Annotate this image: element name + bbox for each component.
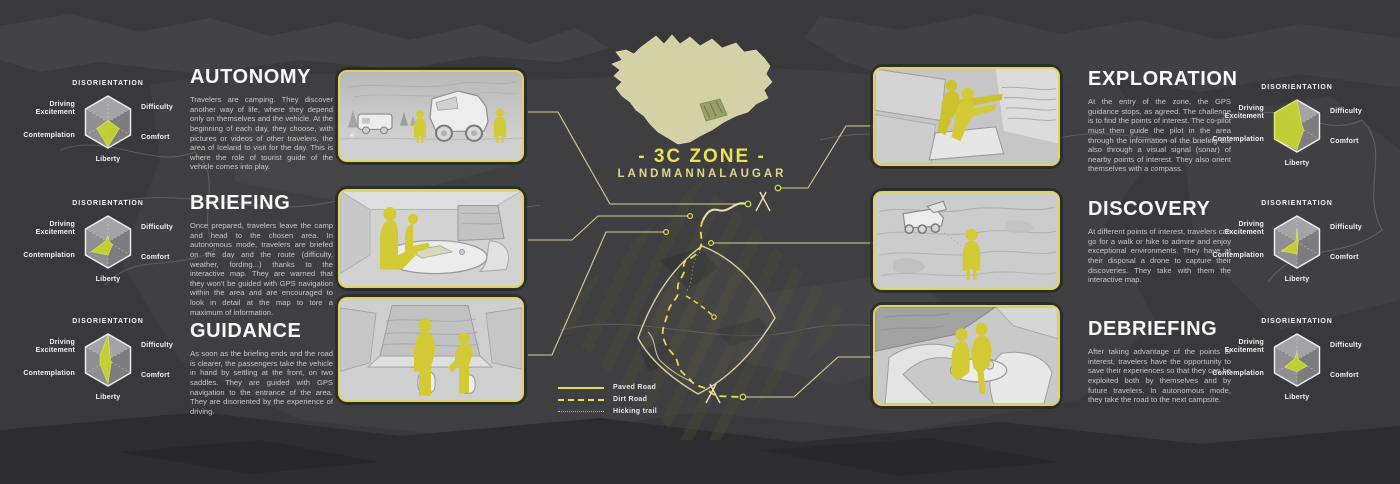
illustration-card-autonomy [335, 67, 527, 165]
radar-axis-contemplation: Contemplation [23, 370, 75, 378]
infographic-canvas: - 3C ZONE - LANDMANNALAUGAR Paved Road D… [0, 0, 1400, 484]
radar-axis-liberty: Liberty [23, 394, 193, 402]
section-text-discovery: At different points of interest, travele… [1088, 227, 1231, 285]
radar-axis-difficulty: Difficulty [141, 342, 193, 350]
dirt-road-sample [558, 399, 604, 401]
radar-exploration: DISORIENTATION Driving Excitement Diffic… [1212, 84, 1382, 170]
radar-axis-driving-excitement: Driving Excitement [23, 339, 75, 355]
radar-chart [1267, 94, 1327, 158]
legend-label: Hicking trail [613, 408, 657, 415]
radar-axis-liberty: Liberty [1212, 276, 1382, 284]
radar-chart [1267, 328, 1327, 392]
radar-axis-contemplation: Contemplation [23, 252, 75, 260]
radar-chart [78, 90, 138, 154]
briefing-illustration [340, 191, 522, 286]
radar-axis-comfort: Comfort [141, 134, 193, 142]
illustration-card-exploration [870, 64, 1063, 169]
debriefing-illustration [875, 307, 1058, 404]
map-legend: Paved Road Dirt Road Hicking trail [558, 384, 657, 420]
radar-axis-difficulty: Difficulty [141, 104, 193, 112]
radar-autonomy: DISORIENTATION Driving Excitement Diffic… [23, 80, 193, 166]
radar-axis-difficulty: Difficulty [1330, 108, 1382, 116]
illustration-card-debriefing [870, 302, 1063, 409]
radar-axis-liberty: Liberty [1212, 394, 1382, 402]
radar-axis-comfort: Comfort [141, 254, 193, 262]
radar-discovery: DISORIENTATION Driving Excitement Diffic… [1212, 200, 1382, 286]
section-title-guidance: GUIDANCE [190, 320, 333, 343]
illustration-card-briefing [335, 186, 527, 291]
section-title-discovery: DISCOVERY [1088, 198, 1231, 221]
discovery-illustration [875, 193, 1058, 288]
radar-debriefing: DISORIENTATION Driving Excitement Diffic… [1212, 318, 1382, 404]
radar-axis-disorientation: DISORIENTATION [23, 80, 193, 88]
radar-axis-liberty: Liberty [1212, 160, 1382, 168]
radar-axis-difficulty: Difficulty [141, 224, 193, 232]
radar-axis-disorientation: DISORIENTATION [1212, 200, 1382, 208]
iceland-map [612, 35, 772, 144]
radar-axis-liberty: Liberty [23, 156, 193, 164]
illustration-card-guidance [335, 294, 527, 405]
section-text-debriefing: After taking advantage of the points of … [1088, 347, 1231, 405]
radar-chart [78, 210, 138, 274]
radar-axis-comfort: Comfort [1330, 254, 1382, 262]
section-title-debriefing: DEBRIEFING [1088, 318, 1231, 341]
radar-guidance: DISORIENTATION Driving Excitement Diffic… [23, 318, 193, 404]
guidance-illustration [340, 299, 522, 400]
campsite-illustration [340, 72, 522, 160]
zone-subtitle: LANDMANNALAUGAR [596, 168, 808, 180]
radar-axis-comfort: Comfort [1330, 372, 1382, 380]
radar-axis-contemplation: Contemplation [23, 132, 75, 140]
paved-road-sample [558, 387, 604, 389]
zone-title: - 3C ZONE - [608, 146, 796, 168]
hiking-trail-sample [558, 411, 604, 412]
radar-axis-disorientation: DISORIENTATION [1212, 318, 1382, 326]
illustration-card-discovery [870, 188, 1063, 293]
section-title-autonomy: AUTONOMY [190, 66, 333, 89]
radar-briefing: DISORIENTATION Driving Excitement Diffic… [23, 200, 193, 286]
tent-icon [756, 192, 770, 211]
section-text-briefing: Once prepared, travelers leave the camp … [190, 221, 333, 317]
radar-axis-difficulty: Difficulty [1330, 342, 1382, 350]
radar-chart [78, 328, 138, 392]
radar-axis-comfort: Comfort [141, 372, 193, 380]
section-text-guidance: As soon as the briefing ends and the roa… [190, 349, 333, 416]
section-title-exploration: EXPLORATION [1088, 68, 1231, 91]
legend-label: Paved Road [613, 384, 656, 391]
radar-axis-driving-excitement: Driving Excitement [23, 221, 75, 237]
legend-label: Dirt Road [613, 396, 647, 403]
exploration-illustration [875, 69, 1058, 164]
radar-chart [1267, 210, 1327, 274]
section-text-exploration: At the entry of the zone, the GPS guidan… [1088, 97, 1231, 174]
radar-axis-liberty: Liberty [23, 276, 193, 284]
section-text-autonomy: Travelers are camping. They discover ano… [190, 95, 333, 172]
radar-axis-disorientation: DISORIENTATION [23, 318, 193, 326]
zone-map [520, 20, 880, 440]
radar-axis-difficulty: Difficulty [1330, 224, 1382, 232]
section-title-briefing: BRIEFING [190, 192, 333, 215]
radar-axis-driving-excitement: Driving Excitement [23, 101, 75, 117]
radar-axis-comfort: Comfort [1330, 138, 1382, 146]
radar-axis-disorientation: DISORIENTATION [23, 200, 193, 208]
